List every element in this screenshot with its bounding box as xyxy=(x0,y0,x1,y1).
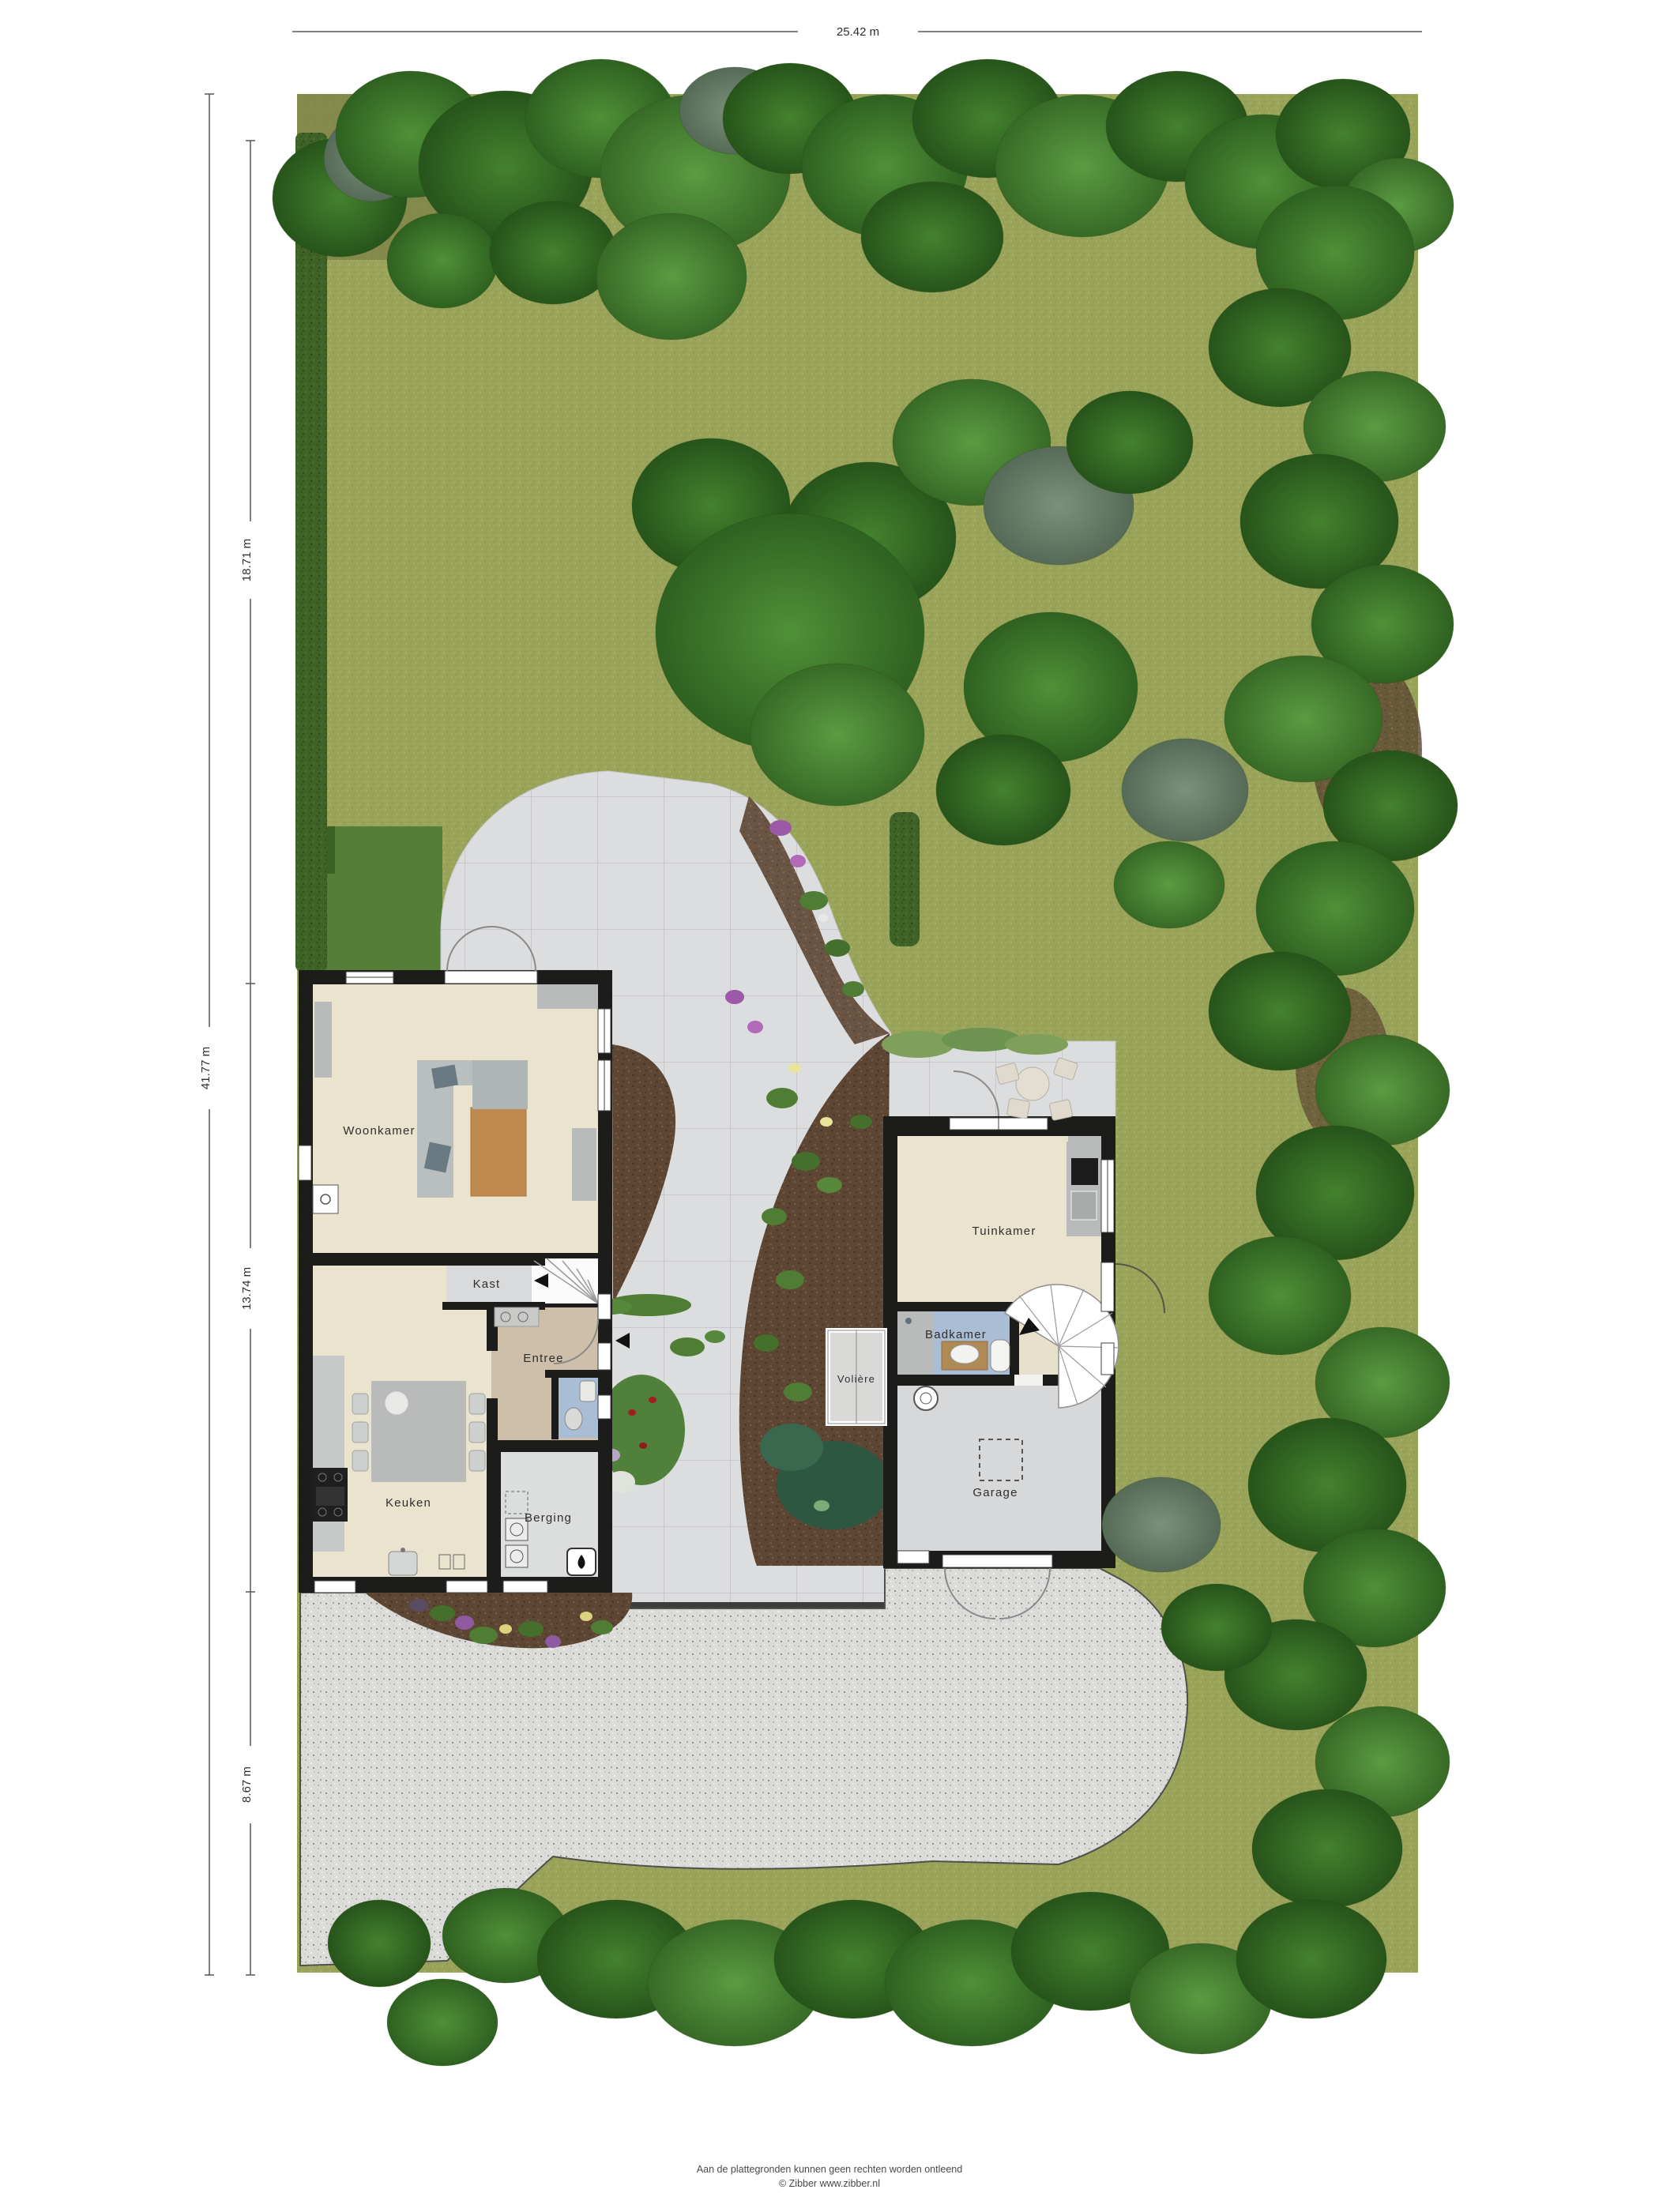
fireplace-icon xyxy=(313,1185,338,1213)
kitchen-island xyxy=(371,1381,466,1482)
cabinet-left xyxy=(314,1002,332,1078)
label-badkamer: Badkamer xyxy=(925,1328,987,1341)
pantry-counter xyxy=(495,1307,539,1326)
woonkamer-floor xyxy=(313,984,598,1253)
dim-segment-middle: 13.74 m xyxy=(240,1267,254,1310)
dim-segment-top: 18.71 m xyxy=(240,539,254,581)
site-plan: 25.42 m 41.77 m 18.71 m 13.74 m 8.67 m W… xyxy=(0,0,1659,2212)
footer-credit: © Zibber www.zibber.nl xyxy=(779,2178,880,2189)
main-house xyxy=(299,927,630,1593)
island-plate xyxy=(385,1391,408,1415)
tv-cabinet xyxy=(572,1128,596,1201)
boiler-flame-icon xyxy=(567,1548,596,1575)
label-voliere: Volière xyxy=(837,1373,875,1385)
label-berging: Berging xyxy=(525,1511,572,1525)
shower xyxy=(897,1311,934,1375)
label-woonkamer: Woonkamer xyxy=(343,1124,415,1138)
stove-icon xyxy=(313,1468,348,1522)
sideboard-top xyxy=(537,984,598,1009)
floorplan-page: 25.42 m 41.77 m 18.71 m 13.74 m 8.67 m W… xyxy=(0,0,1659,2212)
label-keuken: Keuken xyxy=(386,1496,431,1510)
garage-boiler-icon xyxy=(914,1386,938,1410)
sofa-chaise xyxy=(472,1060,528,1109)
label-entree: Entree xyxy=(523,1352,563,1365)
dim-top-width: 25.42 m xyxy=(837,25,879,39)
kitchen-counter xyxy=(313,1356,344,1552)
rug xyxy=(471,1108,526,1196)
dim-segment-bottom: 8.67 m xyxy=(240,1766,254,1803)
footer: Aan de plattegronden kunnen geen rechten… xyxy=(697,2164,962,2189)
label-kast: Kast xyxy=(473,1277,501,1291)
label-garage: Garage xyxy=(972,1486,1018,1499)
label-tuinkamer: Tuinkamer xyxy=(972,1224,1036,1238)
mat-top-right xyxy=(1068,1136,1101,1158)
dim-left-total: 41.77 m xyxy=(199,1047,213,1089)
footer-disclaimer: Aan de plattegronden kunnen geen rechten… xyxy=(697,2164,962,2175)
sofa-cushion xyxy=(431,1065,458,1089)
